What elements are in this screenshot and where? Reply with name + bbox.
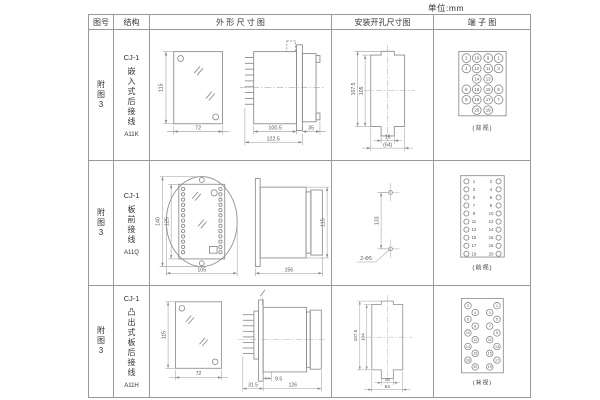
terminal-num: 9 bbox=[496, 331, 498, 335]
terminal-num: 11 bbox=[486, 66, 491, 71]
dim-total-len-r1: 122.5 bbox=[266, 136, 279, 142]
dim-side-len-r2: 156 bbox=[284, 267, 293, 273]
terminal-num: 14 bbox=[474, 76, 479, 81]
terminal-num: 8 bbox=[490, 203, 493, 208]
terminal-view-label-r3: (背视) bbox=[473, 378, 492, 386]
dim-rear-len-r1: 35 bbox=[308, 125, 314, 131]
figure-no-cell-r1: 附图3 bbox=[89, 30, 114, 161]
terminal-view-label-r1: (背视) bbox=[472, 124, 492, 132]
terminal-num: 10 bbox=[489, 211, 494, 216]
terminal-num: 16 bbox=[489, 235, 494, 240]
structure-code-r3: A11H bbox=[124, 383, 139, 389]
terminal-num: 16 bbox=[473, 351, 477, 355]
terminal-num: 8 bbox=[465, 97, 468, 102]
structure-model-r1: CJ-1 bbox=[124, 53, 140, 62]
dim-inner-h-r2: 125 bbox=[164, 217, 170, 226]
dim-cutout-w-r3: 64 bbox=[384, 384, 390, 390]
dim-inner-h-r3: 104 bbox=[360, 333, 366, 341]
terminal-num: 13 bbox=[495, 344, 499, 348]
terminal-num: 14 bbox=[466, 344, 470, 348]
terminal-num: 14 bbox=[489, 227, 494, 232]
terminal-num: 9 bbox=[487, 56, 490, 61]
structure-desc-r1: 嵌入式后接线 bbox=[126, 67, 137, 127]
install-cell-r3: 107.5 104 16 64 bbox=[332, 286, 434, 398]
terminal-num: 9 bbox=[473, 211, 476, 216]
terminal-num: 18 bbox=[489, 243, 494, 248]
terminal-drawing-r2: 12 34 56 78 910 1112 1314 1516 1718 1920… bbox=[436, 170, 528, 276]
dim-outer-h-r2: 140 bbox=[155, 217, 161, 226]
header-figure-no: 图号 bbox=[89, 15, 114, 30]
terminal-num: 20 bbox=[473, 365, 477, 369]
terminal-num: 15 bbox=[486, 87, 491, 92]
structure-desc-r3: 凸出式板后接线 bbox=[126, 308, 137, 378]
terminal-drawing-r3: 2 6 10 14 18 4 8 12 16 20 3 7 11 15 19 1… bbox=[438, 291, 526, 393]
terminal-cell-r3: 2 6 10 14 18 4 8 12 16 20 3 7 11 15 19 1… bbox=[434, 286, 531, 398]
figure-no-r2: 附图3 bbox=[96, 208, 107, 239]
terminal-num: 4 bbox=[490, 187, 493, 192]
terminal-num: 15 bbox=[488, 351, 492, 355]
dim-cutout-w-r1: (64) bbox=[383, 142, 392, 148]
hole-spec-label-r2: 2-Φ5 bbox=[360, 256, 372, 262]
dim-front-height-r3: 115 bbox=[161, 331, 167, 339]
terminal-num: 4 bbox=[465, 66, 468, 71]
dim-front-width-r3: 72 bbox=[195, 371, 201, 377]
install-drawing-r2: 133 2-Φ5 bbox=[336, 166, 430, 281]
terminal-num: 17 bbox=[472, 243, 477, 248]
structure-code-r1: A11K bbox=[124, 132, 138, 138]
header-outline: 外 形 尺 寸 图 bbox=[150, 15, 332, 30]
terminal-num: 2 bbox=[490, 179, 493, 184]
terminal-num: 3 bbox=[489, 310, 491, 314]
terminal-num: 15 bbox=[472, 235, 477, 240]
terminal-num: 20 bbox=[474, 108, 479, 113]
terminal-num: 7 bbox=[489, 324, 491, 328]
terminal-num: 20 bbox=[489, 251, 494, 256]
terminal-num: 11 bbox=[472, 219, 477, 224]
install-cell-r1: 107.5 105 16 (64) bbox=[332, 30, 434, 161]
terminal-num: 13 bbox=[472, 227, 477, 232]
structure-model-r3: CJ-1 bbox=[124, 294, 140, 303]
terminal-num: 5 bbox=[496, 317, 498, 321]
terminal-num: 8 bbox=[474, 324, 476, 328]
terminal-num: 7 bbox=[473, 203, 476, 208]
terminal-num: 7 bbox=[497, 97, 500, 102]
terminal-num: 18 bbox=[474, 97, 479, 102]
header-install: 安装开孔尺寸图 bbox=[332, 15, 434, 30]
terminal-num: 11 bbox=[488, 338, 492, 342]
dim-hole-dist-r2: 133 bbox=[374, 216, 380, 225]
terminal-num: 12 bbox=[489, 219, 494, 224]
install-drawing-r3: 107.5 104 16 64 bbox=[340, 289, 426, 394]
terminal-num: 2 bbox=[465, 56, 468, 61]
terminal-num: 18 bbox=[466, 358, 470, 362]
figure-no-cell-r2: 附图3 bbox=[89, 161, 114, 286]
dim-pin-len-r3: 9.5 bbox=[275, 376, 282, 382]
dim-front-height-r1: 115 bbox=[158, 83, 164, 92]
terminal-num: 12 bbox=[473, 338, 477, 342]
terminal-num: 19 bbox=[472, 251, 477, 256]
terminal-num: 19 bbox=[486, 108, 491, 113]
terminal-num: 3 bbox=[473, 187, 476, 192]
terminal-num: 1 bbox=[496, 303, 498, 307]
dim-inner-h-r1: 105 bbox=[358, 86, 364, 95]
header-structure: 结构 bbox=[114, 15, 150, 30]
outline-drawing-r2: 140 125 105 156 115 bbox=[152, 167, 330, 280]
install-cell-r2: 133 2-Φ5 bbox=[332, 161, 434, 286]
dim-slot-w-r1: 16 bbox=[384, 134, 390, 140]
terminal-num: 6 bbox=[467, 317, 469, 321]
outline-cell-r3: 115 72 9.5 31.5 bbox=[150, 286, 332, 398]
terminal-cell-r2: 12 34 56 78 910 1112 1314 1516 1718 1920… bbox=[434, 161, 531, 286]
terminal-num: 1 bbox=[473, 179, 476, 184]
terminal-cell-r1: 2 10 9 1 4 12 11 3 14 13 6 16 15 5 8 18 … bbox=[434, 30, 531, 161]
dim-front-width-r1: 72 bbox=[195, 125, 201, 131]
terminal-num: 6 bbox=[465, 87, 468, 92]
structure-desc-r2: 板前接线 bbox=[126, 205, 137, 245]
terminal-num: 13 bbox=[486, 76, 491, 81]
terminal-num: 19 bbox=[488, 365, 492, 369]
dim-seg-len-r3: 31.5 bbox=[248, 383, 258, 389]
structure-cell-r3: CJ-1 凸出式板后接线 A11H bbox=[114, 286, 150, 398]
terminal-num: 6 bbox=[490, 195, 493, 200]
terminal-num: 5 bbox=[473, 195, 476, 200]
outline-cell-r2: 140 125 105 156 115 bbox=[150, 161, 332, 286]
terminal-num: 10 bbox=[474, 56, 479, 61]
terminal-num: 12 bbox=[474, 66, 479, 71]
dim-slot-w-r3: 16 bbox=[384, 377, 390, 383]
figure-no-cell-r3: 附图3 bbox=[89, 286, 114, 398]
structure-model-r2: CJ-1 bbox=[124, 191, 140, 200]
outline-drawing-r3: 115 72 9.5 31.5 bbox=[157, 287, 325, 396]
dim-outer-h-r1: 107.5 bbox=[350, 82, 356, 95]
terminal-num: 1 bbox=[497, 56, 500, 61]
structure-code-r2: A11Q bbox=[124, 250, 139, 256]
terminal-num: 2 bbox=[467, 303, 469, 307]
dim-body-len-r1: 100.5 bbox=[268, 125, 281, 131]
terminal-num: 17 bbox=[495, 358, 499, 362]
terminal-drawing-r1: 2 10 9 1 4 12 11 3 14 13 6 16 15 5 8 18 … bbox=[436, 42, 528, 148]
install-drawing-r1: 107.5 105 16 (64) bbox=[336, 38, 430, 153]
dim-width-r2: 105 bbox=[197, 267, 206, 273]
figure-no-r1: 附图3 bbox=[96, 80, 107, 111]
terminal-num: 5 bbox=[497, 87, 500, 92]
terminal-num: 4 bbox=[474, 310, 476, 314]
terminal-num: 17 bbox=[486, 97, 491, 102]
structure-cell-r1: CJ-1 嵌入式后接线 A11K bbox=[114, 30, 150, 161]
outline-cell-r1: 115 72 100.5 35 bbox=[150, 30, 332, 161]
dim-side-h-r2: 115 bbox=[320, 218, 326, 226]
figure-no-r3: 附图3 bbox=[96, 326, 107, 357]
terminal-num: 10 bbox=[466, 331, 470, 335]
dim-body-len-r3: 126 bbox=[288, 383, 297, 389]
spec-table: 图号 结构 外 形 尺 寸 图 安装开孔尺寸图 端 子 图 附图3 CJ-1 嵌… bbox=[88, 14, 531, 398]
dim-outer-h-r3: 107.5 bbox=[353, 329, 359, 341]
header-terminal: 端 子 图 bbox=[434, 15, 531, 30]
terminal-num: 16 bbox=[474, 87, 479, 92]
terminal-view-label-r2: (前视) bbox=[472, 263, 492, 271]
unit-label: 单位:mm bbox=[428, 2, 464, 14]
structure-cell-r2: CJ-1 板前接线 A11Q bbox=[114, 161, 150, 286]
outline-drawing-r1: 115 72 100.5 35 bbox=[152, 38, 330, 153]
terminal-num: 3 bbox=[497, 66, 500, 71]
